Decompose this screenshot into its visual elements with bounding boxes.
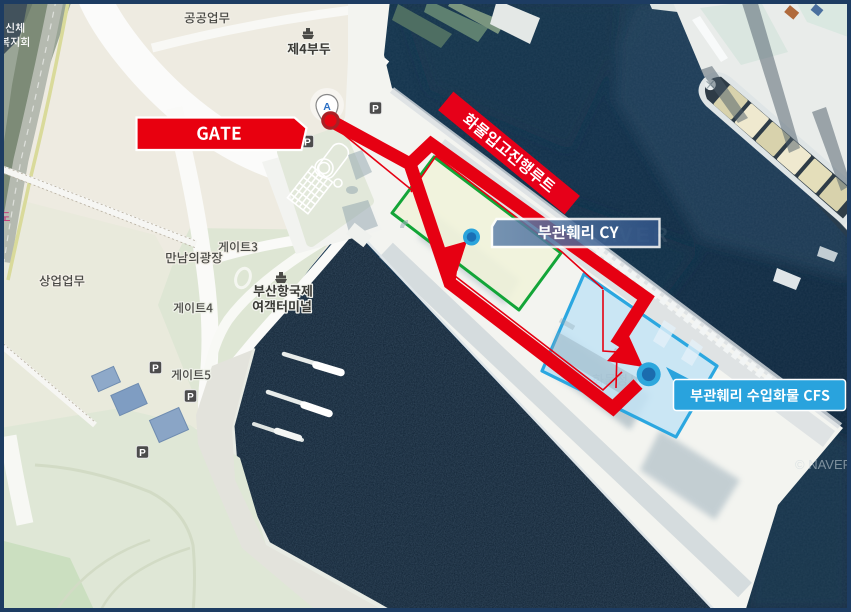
svg-text:P: P <box>139 448 146 459</box>
svg-text:P: P <box>372 104 379 115</box>
svg-text:A: A <box>323 101 331 113</box>
svg-text:P: P <box>152 363 159 374</box>
svg-text:© NAVER: © NAVER <box>795 457 851 472</box>
svg-text:P: P <box>187 392 194 403</box>
svg-text:P: P <box>304 137 311 148</box>
